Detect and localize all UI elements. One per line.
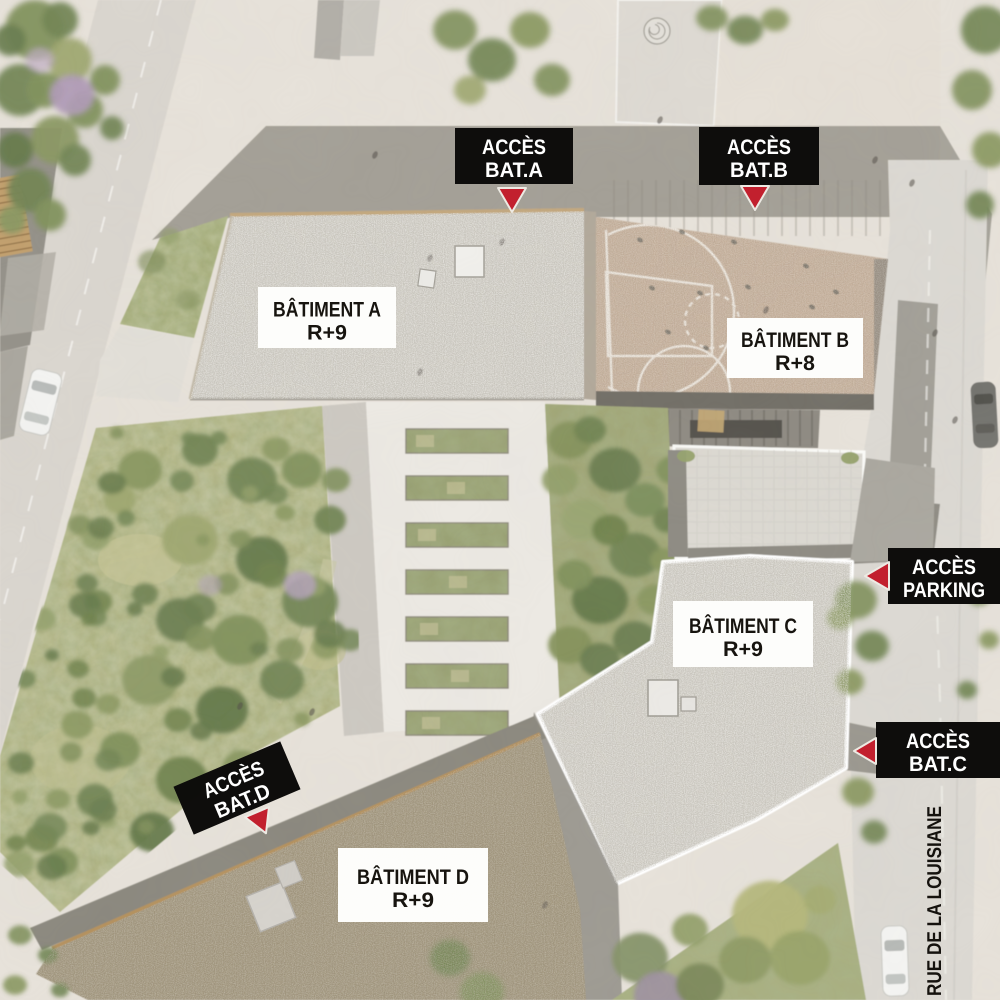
svg-text:R+8: R+8 — [775, 352, 815, 375]
svg-text:BÂTIMENT D: BÂTIMENT D — [357, 865, 469, 889]
svg-text:ACCÈS: ACCÈS — [727, 135, 791, 159]
svg-text:R+9: R+9 — [392, 889, 434, 912]
svg-text:PARKING: PARKING — [903, 579, 985, 602]
svg-text:BÂTIMENT B: BÂTIMENT B — [741, 328, 849, 352]
svg-text:RUE DE LA LOUISIANE: RUE DE LA LOUISIANE — [924, 806, 946, 996]
svg-text:R+9: R+9 — [723, 638, 763, 661]
svg-text:ACCÈS: ACCÈS — [482, 135, 546, 159]
svg-text:BAT.C: BAT.C — [909, 753, 967, 776]
svg-text:BÂTIMENT A: BÂTIMENT A — [273, 298, 381, 322]
svg-text:BÂTIMENT C: BÂTIMENT C — [689, 614, 797, 638]
svg-text:ACCÈS: ACCÈS — [912, 555, 976, 579]
svg-text:R+9: R+9 — [307, 322, 347, 345]
svg-text:ACCÈS: ACCÈS — [906, 729, 970, 753]
svg-text:BAT.B: BAT.B — [730, 159, 788, 182]
svg-text:BAT.A: BAT.A — [485, 159, 543, 182]
